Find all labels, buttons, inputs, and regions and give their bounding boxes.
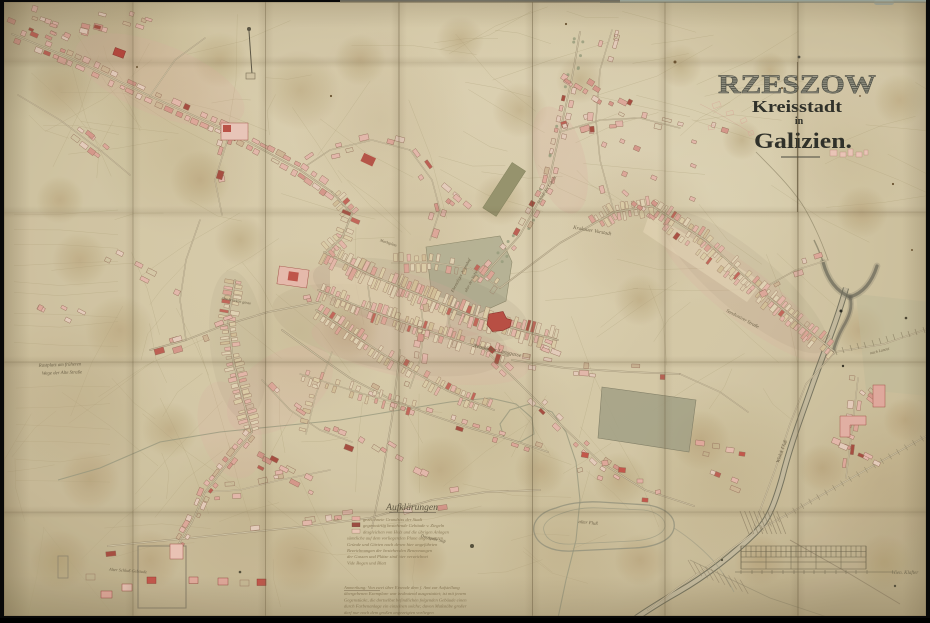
svg-text:gegenwärtig bestehende Gebäude: gegenwärtig bestehende Gebäude v. Ziegel… [363,523,445,528]
svg-text:in: in [795,116,804,127]
svg-text:Aufklärungen: Aufklärungen [385,502,438,513]
svg-text:gezeichnete Grundriss der Stad: gezeichnete Grundriss der Stadt [363,517,423,522]
svg-text:der Gassen und Plätze sind hie: der Gassen und Plätze sind hier verzeich… [347,554,429,559]
svg-text:Vide Bogen und Blatt: Vide Bogen und Blatt [347,560,387,565]
svg-text:Bezeichnungen der bestehenden: Bezeichnungen der bestehenden Benennunge… [347,548,433,553]
svg-text:Galizien.: Galizien. [754,128,852,153]
svg-text:a.b.: a.b. [333,517,340,522]
svg-text:Gründe und Gärten nach denen h: Gründe und Gärten nach denen hier angefü… [347,542,438,547]
svg-text:desgleichen von Holz und die ü: desgleichen von Holz und die übrigen Anl… [363,529,450,534]
